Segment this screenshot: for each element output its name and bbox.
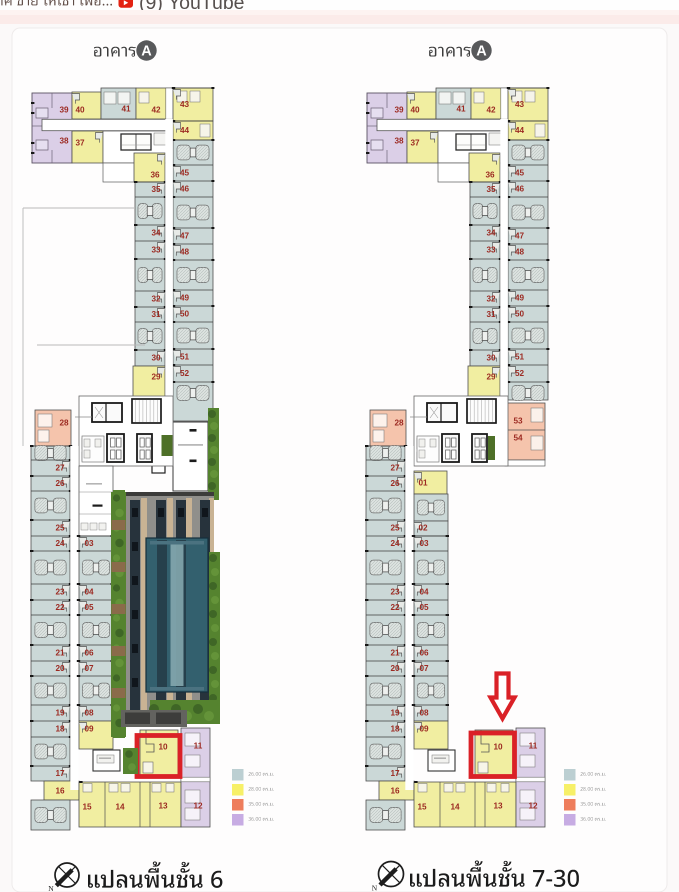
svg-text:10: 10 xyxy=(158,743,168,752)
svg-text:18: 18 xyxy=(390,725,400,734)
svg-text:28: 28 xyxy=(394,419,404,428)
svg-text:09: 09 xyxy=(419,725,429,734)
svg-text:15: 15 xyxy=(82,803,92,812)
svg-text:01: 01 xyxy=(418,479,428,488)
svg-text:30: 30 xyxy=(151,354,161,363)
svg-text:42: 42 xyxy=(486,106,496,115)
svg-text:03: 03 xyxy=(84,539,94,548)
svg-text:16: 16 xyxy=(55,787,65,796)
svg-text:21: 21 xyxy=(390,649,400,658)
svg-text:26: 26 xyxy=(55,479,65,488)
svg-text:05: 05 xyxy=(419,603,429,612)
svg-text:33: 33 xyxy=(486,246,496,255)
svg-text:42: 42 xyxy=(151,106,161,115)
svg-text:A: A xyxy=(476,44,487,60)
svg-text:47: 47 xyxy=(180,232,190,241)
svg-text:48: 48 xyxy=(180,248,190,257)
svg-text:24: 24 xyxy=(55,539,65,548)
svg-text:32: 32 xyxy=(486,295,496,304)
svg-text:23: 23 xyxy=(55,588,65,597)
svg-text:44: 44 xyxy=(515,126,525,135)
svg-text:N: N xyxy=(48,884,54,892)
svg-text:51: 51 xyxy=(515,353,525,362)
svg-text:10: 10 xyxy=(493,743,503,752)
svg-text:26: 26 xyxy=(390,479,400,488)
svg-text:20: 20 xyxy=(55,664,65,673)
svg-text:06: 06 xyxy=(419,649,429,658)
svg-text:38: 38 xyxy=(59,137,69,146)
svg-text:12: 12 xyxy=(528,802,538,811)
svg-text:03: 03 xyxy=(419,539,429,548)
svg-text:N: N xyxy=(372,884,378,892)
svg-text:14: 14 xyxy=(115,803,125,812)
svg-text:A: A xyxy=(141,44,152,60)
svg-text:50: 50 xyxy=(180,310,190,319)
svg-text:52: 52 xyxy=(180,369,190,378)
svg-text:40: 40 xyxy=(75,106,85,115)
svg-text:34: 34 xyxy=(486,229,496,238)
svg-text:41: 41 xyxy=(456,105,466,114)
svg-text:27: 27 xyxy=(55,464,65,473)
svg-text:15: 15 xyxy=(417,803,427,812)
svg-text:37: 37 xyxy=(75,139,85,148)
svg-text:34: 34 xyxy=(151,229,161,238)
svg-text:46: 46 xyxy=(515,185,525,194)
svg-text:48: 48 xyxy=(515,248,525,257)
svg-text:30: 30 xyxy=(486,354,496,363)
svg-text:28: 28 xyxy=(59,419,69,428)
svg-text:29: 29 xyxy=(151,373,161,382)
svg-text:52: 52 xyxy=(515,369,525,378)
svg-text:02: 02 xyxy=(418,524,428,533)
svg-text:39: 39 xyxy=(394,106,404,115)
svg-text:39: 39 xyxy=(59,106,69,115)
svg-text:43: 43 xyxy=(180,100,190,109)
svg-text:17: 17 xyxy=(390,769,400,778)
svg-text:29: 29 xyxy=(486,373,496,382)
svg-text:04: 04 xyxy=(84,588,94,597)
svg-text:25: 25 xyxy=(390,524,400,533)
svg-text:07: 07 xyxy=(84,664,94,673)
svg-text:32: 32 xyxy=(151,295,161,304)
svg-text:23: 23 xyxy=(390,588,400,597)
svg-text:36: 36 xyxy=(150,171,160,180)
svg-text:51: 51 xyxy=(180,353,190,362)
svg-text:07: 07 xyxy=(419,664,429,673)
svg-text:11: 11 xyxy=(529,742,538,751)
svg-text:35: 35 xyxy=(486,185,496,194)
svg-text:44: 44 xyxy=(180,126,190,135)
svg-text:17: 17 xyxy=(55,769,65,778)
svg-text:27: 27 xyxy=(390,464,400,473)
svg-text:13: 13 xyxy=(493,802,503,811)
svg-text:38: 38 xyxy=(394,137,404,146)
svg-text:19: 19 xyxy=(55,709,65,718)
svg-text:16: 16 xyxy=(390,787,400,796)
svg-text:24: 24 xyxy=(390,539,400,548)
svg-text:41: 41 xyxy=(121,105,131,114)
svg-text:31: 31 xyxy=(486,310,496,319)
svg-text:22: 22 xyxy=(55,603,65,612)
svg-text:09: 09 xyxy=(84,725,94,734)
svg-text:14: 14 xyxy=(450,803,460,812)
svg-text:53: 53 xyxy=(513,417,523,426)
svg-text:25: 25 xyxy=(55,524,65,533)
svg-text:37: 37 xyxy=(410,139,420,148)
svg-text:43: 43 xyxy=(515,100,525,109)
svg-text:36: 36 xyxy=(485,171,495,180)
svg-text:49: 49 xyxy=(180,294,190,303)
svg-text:46: 46 xyxy=(180,185,190,194)
svg-text:31: 31 xyxy=(151,310,161,319)
svg-text:06: 06 xyxy=(84,649,94,658)
svg-text:21: 21 xyxy=(55,649,65,658)
svg-text:04: 04 xyxy=(419,588,429,597)
svg-text:20: 20 xyxy=(390,664,400,673)
svg-text:12: 12 xyxy=(193,802,203,811)
svg-text:13: 13 xyxy=(158,802,168,811)
svg-text:33: 33 xyxy=(151,246,161,255)
svg-text:54: 54 xyxy=(513,434,523,443)
svg-text:08: 08 xyxy=(419,709,429,718)
svg-text:22: 22 xyxy=(390,603,400,612)
svg-text:08: 08 xyxy=(84,709,94,718)
svg-text:50: 50 xyxy=(515,310,525,319)
svg-text:45: 45 xyxy=(515,169,525,178)
svg-text:11: 11 xyxy=(194,742,203,751)
svg-text:49: 49 xyxy=(515,294,525,303)
svg-text:19: 19 xyxy=(390,709,400,718)
svg-text:18: 18 xyxy=(55,725,65,734)
svg-text:47: 47 xyxy=(515,232,525,241)
svg-text:35: 35 xyxy=(151,185,161,194)
svg-text:40: 40 xyxy=(410,106,420,115)
svg-text:05: 05 xyxy=(84,603,94,612)
svg-text:45: 45 xyxy=(180,169,190,178)
